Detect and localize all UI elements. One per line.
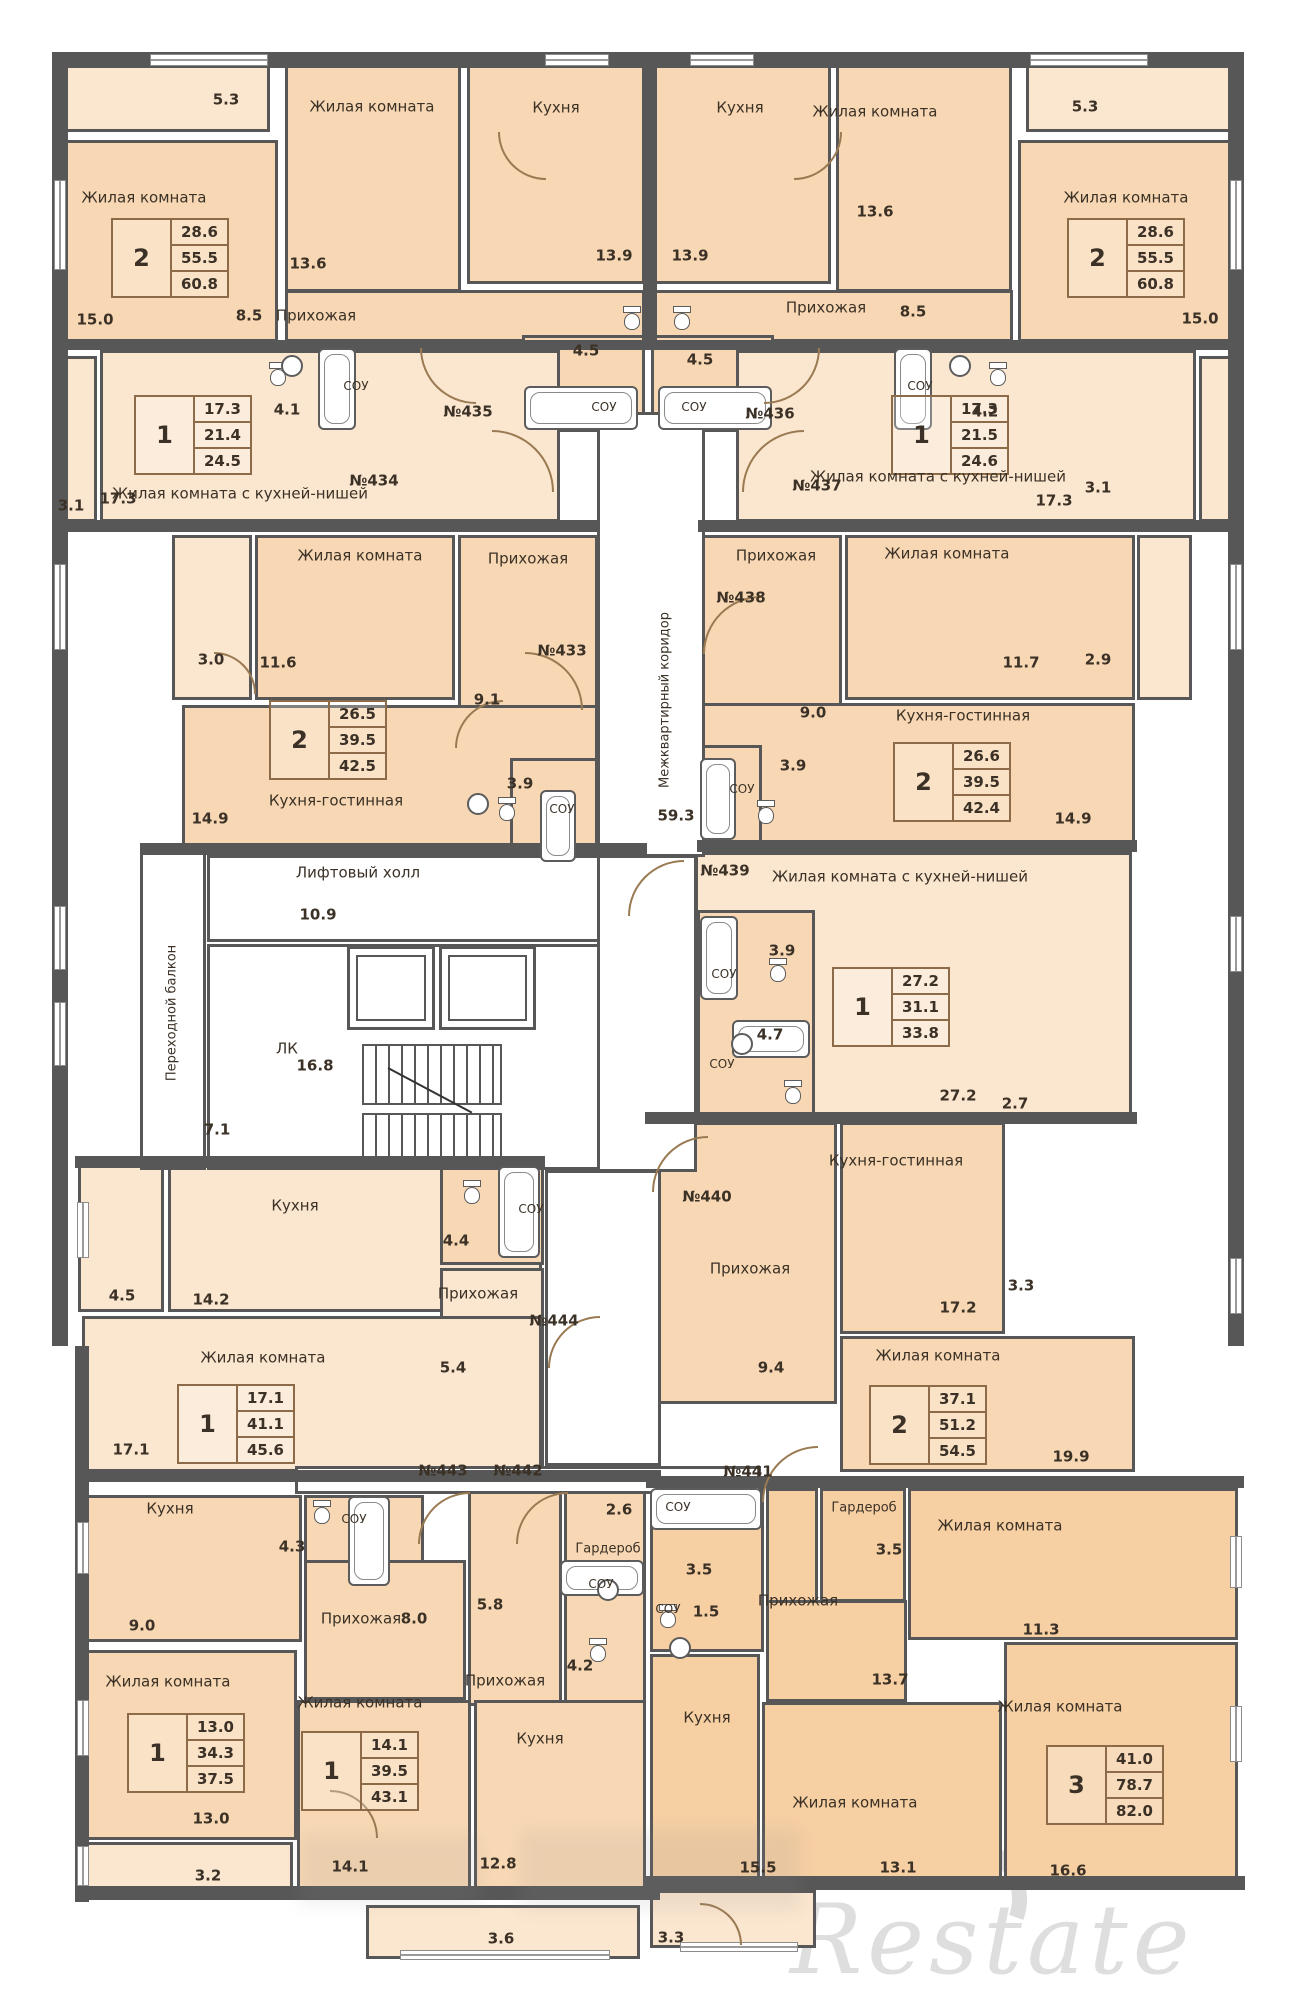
room-label: Жилая комната — [813, 105, 938, 120]
room-label: Кухня — [716, 101, 763, 116]
sink-icon — [949, 355, 971, 377]
bathtub-icon — [700, 916, 738, 1000]
dimension-label: 9.0 — [129, 1619, 156, 1634]
area-table-value: 55.5 — [1128, 246, 1183, 272]
wall-segment — [52, 340, 1244, 350]
dimension-label: 5.3 — [213, 93, 240, 108]
sink-icon — [281, 355, 303, 377]
toilet-icon — [462, 1180, 482, 1206]
room-label: Кухня — [516, 1732, 563, 1747]
room-label: Жилая комната — [793, 1796, 918, 1811]
apartment-number: №433 — [537, 644, 586, 659]
sink-icon — [467, 793, 489, 815]
dimension-label: 17.2 — [939, 1301, 976, 1316]
elevator-shaft — [347, 946, 435, 1030]
room-label: Жилая комната — [298, 1696, 423, 1711]
toilet-tank — [623, 306, 641, 313]
dimension-label: 14.1 — [331, 1860, 368, 1875]
area-table-value: 41.1 — [238, 1412, 293, 1438]
dimension-label: 16.8 — [296, 1059, 333, 1074]
apartment-number: №443 — [418, 1464, 467, 1479]
toilet-bowl — [674, 313, 690, 330]
room-label: СОУ — [709, 1058, 734, 1070]
room-label: СОУ — [343, 380, 368, 392]
toilet-bowl — [785, 1087, 801, 1104]
window — [150, 54, 268, 66]
dimension-label: 9.4 — [758, 1361, 785, 1376]
area-table-value: 51.2 — [930, 1413, 985, 1439]
area-table-value: 28.6 — [1128, 220, 1183, 246]
bathtub-basin — [706, 922, 732, 994]
dimension-label: 4.1 — [274, 403, 301, 418]
toilet-icon — [312, 1500, 332, 1526]
window — [77, 1202, 89, 1258]
dimension-label: 13.7 — [871, 1673, 908, 1688]
room-label: Жилая комната — [876, 1349, 1001, 1364]
area-table: 114.139.543.1 — [301, 1731, 419, 1811]
area-table-value: 54.5 — [930, 1439, 985, 1463]
dimension-label: 11.7 — [1002, 656, 1039, 671]
dimension-label: 3.9 — [507, 777, 534, 792]
dimension-label: 15.5 — [739, 1861, 776, 1876]
dimension-label: 9.0 — [800, 706, 827, 721]
toilet-icon — [783, 1080, 803, 1106]
room-label: Жилая комната — [1064, 191, 1189, 206]
apartment-number: №434 — [349, 474, 398, 489]
dimension-label: 3.9 — [780, 759, 807, 774]
area-table-value: 26.5 — [330, 702, 385, 728]
room-label: Жилая комната — [298, 549, 423, 564]
wall-segment — [75, 1470, 661, 1482]
bathtub-icon — [524, 386, 638, 430]
room-label: Кухня-гостинная — [829, 1154, 963, 1169]
room-label: Прихожая — [710, 1262, 790, 1277]
room-label: Прихожая — [276, 309, 356, 324]
area-table-value: 55.5 — [172, 246, 227, 272]
bathtub-icon — [700, 758, 736, 840]
room-label: Гардероб — [575, 1543, 640, 1556]
dimension-label: 3.0 — [198, 653, 225, 668]
area-table-value: 14.1 — [362, 1733, 417, 1759]
room-balcony-436 — [1026, 62, 1234, 132]
dimension-label: 15.0 — [1181, 312, 1218, 327]
room-label: СОУ — [549, 803, 574, 815]
area-table-value: 39.5 — [954, 770, 1009, 796]
area-table-value: 60.8 — [1128, 272, 1183, 296]
dimension-label: 7.1 — [204, 1123, 231, 1138]
dimension-label: 3.3 — [658, 1931, 685, 1946]
window — [1230, 1536, 1242, 1588]
area-table: 226.539.542.5 — [269, 700, 387, 780]
room-label: Кухня — [146, 1502, 193, 1517]
dimension-label: 8.5 — [236, 309, 263, 324]
room-label: Кухня — [271, 1199, 318, 1214]
bathtub-basin — [530, 392, 632, 424]
room-label: СОУ — [681, 401, 706, 413]
area-table-value: 31.1 — [893, 995, 948, 1021]
window — [690, 54, 754, 66]
toilet-tank — [757, 800, 775, 807]
dimension-label: 2.9 — [1085, 653, 1112, 668]
area-table: 117.141.145.6 — [177, 1384, 295, 1464]
area-table-value: 45.6 — [238, 1438, 293, 1462]
window — [545, 54, 609, 66]
dimension-label: 9.1 — [474, 693, 501, 708]
area-table-value: 39.5 — [362, 1759, 417, 1785]
toilet-tank — [784, 1080, 802, 1087]
toilet-bowl — [990, 369, 1006, 386]
room-label: Кухня-гостинная — [269, 794, 403, 809]
dimension-label: 17.1 — [112, 1443, 149, 1458]
door-arc — [418, 1492, 470, 1544]
dimension-label: 3.5 — [876, 1543, 903, 1558]
dimension-label: 3.9 — [769, 944, 796, 959]
dimension-label: 3.3 — [1008, 1279, 1035, 1294]
area-table-rooms: 2 — [1069, 220, 1128, 296]
window — [1230, 180, 1242, 270]
room-label: Прихожая — [488, 552, 568, 567]
window — [1230, 916, 1242, 972]
dimension-label: 12.8 — [479, 1857, 516, 1872]
area-table-value: 60.8 — [172, 272, 227, 296]
toilet-tank — [673, 306, 691, 313]
apartment-number: №444 — [529, 1314, 578, 1329]
area-table-rooms: 2 — [271, 702, 330, 778]
watermark: Restate — [790, 1892, 1195, 1988]
area-table-value: 43.1 — [362, 1785, 417, 1809]
window — [77, 1522, 89, 1574]
area-table-value: 41.0 — [1107, 1747, 1162, 1773]
room-label: Кухня-гостинная — [896, 709, 1030, 724]
wall-segment — [645, 1112, 1137, 1124]
toilet-bowl — [464, 1187, 480, 1204]
bathtub-basin — [706, 764, 730, 834]
area-table-value: 42.4 — [954, 796, 1009, 820]
window — [400, 1950, 610, 1960]
room-label: Жилая комната с кухней-нишей — [772, 870, 1028, 885]
toilet-bowl — [499, 804, 515, 821]
toilet-bowl — [758, 807, 774, 824]
area-table-value: 82.0 — [1107, 1799, 1162, 1823]
room-label: СОУ — [655, 1603, 680, 1615]
room-label: СОУ — [518, 1203, 543, 1215]
area-table-rooms: 1 — [303, 1733, 362, 1809]
window — [54, 564, 66, 650]
dimension-label: 13.9 — [671, 249, 708, 264]
area-table-value: 17.1 — [238, 1386, 293, 1412]
dimension-label: 59.3 — [657, 809, 694, 824]
room-label: ЛК — [276, 1042, 298, 1057]
room-living-444 — [82, 1316, 542, 1472]
toilet-tank — [498, 797, 516, 804]
dimension-label: 4.2 — [972, 405, 999, 420]
stairs-landing — [362, 1103, 502, 1115]
room-label: Переходной балкон — [166, 945, 179, 1081]
sink-icon — [731, 1033, 753, 1055]
apartment-number: №435 — [443, 405, 492, 420]
room-living113-441 — [908, 1488, 1238, 1640]
area-table-value: 27.2 — [893, 969, 948, 995]
toilet-tank — [989, 362, 1007, 369]
dimension-label: 13.1 — [879, 1861, 916, 1876]
room-label: Жилая комната — [310, 100, 435, 115]
room-label: Лифтовый холл — [296, 866, 420, 881]
wall-segment — [697, 840, 1137, 852]
dimension-label: 13.6 — [856, 205, 893, 220]
room-label: Жилая комната — [998, 1700, 1123, 1715]
dimension-label: 3.2 — [195, 1869, 222, 1884]
room-label: Прихожая — [465, 1674, 545, 1689]
apartment-number: №438 — [716, 591, 765, 606]
window — [77, 1700, 89, 1756]
room-label: Жилая комната — [938, 1519, 1063, 1534]
toilet-icon — [497, 797, 517, 823]
dimension-label: 5.4 — [440, 1361, 467, 1376]
room-living-436 — [836, 62, 1012, 292]
dimension-label: 10.9 — [299, 908, 336, 923]
dimension-label: 2.6 — [606, 1503, 633, 1518]
room-label: Прихожая — [321, 1612, 401, 1627]
apartment-number: №439 — [700, 864, 749, 879]
area-table-value: 13.0 — [188, 1715, 243, 1741]
toilet-bowl — [770, 965, 786, 982]
area-table-value: 21.5 — [952, 423, 1007, 449]
dimension-label: 15.0 — [76, 313, 113, 328]
elevator-shaft — [439, 946, 536, 1030]
bathtub-icon — [348, 1496, 390, 1586]
room-label: Жилая комната — [106, 1675, 231, 1690]
dimension-label: 4.3 — [279, 1540, 306, 1555]
area-table-rooms: 2 — [113, 220, 172, 296]
area-table-value: 28.6 — [172, 220, 227, 246]
room-label: Прихожая — [758, 1594, 838, 1609]
window — [1230, 564, 1242, 650]
area-table-rooms: 2 — [871, 1387, 930, 1463]
stairs — [362, 1044, 502, 1166]
area-table-value: 17.3 — [195, 397, 250, 423]
dimension-label: 13.9 — [595, 249, 632, 264]
apartment-number: №442 — [493, 1464, 542, 1479]
apartment-number: №437 — [792, 479, 841, 494]
area-table: 117.321.424.5 — [134, 395, 252, 475]
window — [54, 180, 66, 270]
area-table-rooms: 1 — [179, 1386, 238, 1462]
dimension-label: 27.2 — [939, 1089, 976, 1104]
area-table-value: 21.4 — [195, 423, 250, 449]
dimension-label: 5.3 — [1072, 100, 1099, 115]
dimension-label: 19.9 — [1052, 1450, 1089, 1465]
window — [77, 1846, 89, 1886]
toilet-tank — [463, 1180, 481, 1187]
area-table-rooms: 3 — [1048, 1747, 1107, 1823]
apartment-number: №440 — [682, 1190, 731, 1205]
area-table: 228.655.560.8 — [1067, 218, 1185, 298]
area-table: 113.034.337.5 — [127, 1713, 245, 1793]
room-label: СОУ — [591, 401, 616, 413]
room-label: СОУ — [588, 1578, 613, 1590]
wall-segment — [643, 52, 657, 342]
dimension-label: 3.1 — [58, 499, 85, 514]
room-label: СОУ — [729, 783, 754, 795]
room-label: Гардероб — [831, 1502, 896, 1515]
toilet-icon — [768, 958, 788, 984]
room-label: Жилая комната — [82, 191, 207, 206]
area-table-value: 24.5 — [195, 449, 250, 473]
dimension-label: 1.5 — [693, 1605, 720, 1620]
window — [1230, 1258, 1242, 1314]
dimension-label: 3.1 — [1085, 481, 1112, 496]
dimension-label: 16.6 — [1049, 1864, 1086, 1879]
bathtub-icon — [540, 790, 576, 862]
dimension-label: 14.2 — [192, 1293, 229, 1308]
window — [1030, 54, 1148, 66]
toilet-icon — [756, 800, 776, 826]
room-balcony-438 — [1137, 535, 1192, 700]
wall-segment — [55, 520, 600, 532]
area-table: 341.078.782.0 — [1046, 1745, 1164, 1825]
room-label: Кухня — [683, 1711, 730, 1726]
dimension-label: 13.0 — [192, 1812, 229, 1827]
area-table: 228.655.560.8 — [111, 218, 229, 298]
area-table-rooms: 1 — [129, 1715, 188, 1791]
dimension-label: 14.9 — [1054, 812, 1091, 827]
room-label: Кухня — [532, 101, 579, 116]
room-label: Прихожая — [736, 549, 816, 564]
room-label: Межквартирный коридор — [659, 612, 672, 788]
dimension-label: 4.5 — [573, 344, 600, 359]
area-table-value: 34.3 — [188, 1741, 243, 1767]
dimension-label: 4.5 — [109, 1289, 136, 1304]
apartment-number: №436 — [745, 407, 794, 422]
window — [54, 1002, 66, 1066]
toilet-icon — [988, 362, 1008, 388]
room-label: Прихожая — [438, 1287, 518, 1302]
floor-plan: Restate 228.655.560.8228.655.560.8117.32… — [0, 0, 1296, 2000]
toilet-tank — [589, 1638, 607, 1645]
room-label: СОУ — [907, 380, 932, 392]
elevator-cab — [448, 955, 527, 1021]
area-table: 237.151.254.5 — [869, 1385, 987, 1465]
area-table-value: 33.8 — [893, 1021, 948, 1045]
area-table-value: 42.5 — [330, 754, 385, 778]
room-label: Жилая комната с кухней-нишей — [810, 470, 1066, 485]
window — [1230, 1706, 1242, 1762]
dimension-label: 5.8 — [477, 1598, 504, 1613]
area-table-value: 39.5 — [330, 728, 385, 754]
room-label: СОУ — [341, 1513, 366, 1525]
area-table-rooms: 1 — [834, 969, 893, 1045]
area-table-value: 78.7 — [1107, 1773, 1162, 1799]
elevator-cab — [356, 955, 426, 1021]
dimension-label: 11.6 — [259, 656, 296, 671]
room-label: Прихожая — [786, 301, 866, 316]
area-table-rooms: 1 — [136, 397, 195, 473]
wall-segment — [75, 1346, 89, 1902]
toilet-bowl — [624, 313, 640, 330]
dimension-label: 11.3 — [1022, 1623, 1059, 1638]
dimension-label: 4.2 — [567, 1659, 594, 1674]
wall-segment — [698, 520, 1244, 532]
toilet-icon — [622, 306, 642, 332]
dimension-label: 8.5 — [900, 305, 927, 320]
dimension-label: 17.3 — [1035, 494, 1072, 509]
sink-icon — [669, 1637, 691, 1659]
room-label: Жилая комната с кухней-нишей — [112, 487, 368, 502]
dimension-label: 3.6 — [488, 1932, 515, 1947]
watermark-blob — [300, 1835, 480, 1905]
area-table-rooms: 2 — [895, 744, 954, 820]
dimension-label: 4.4 — [443, 1234, 470, 1249]
toilet-icon — [672, 306, 692, 332]
window — [54, 906, 66, 970]
room-label: СОУ — [665, 1501, 690, 1513]
area-corridor-top — [597, 412, 705, 857]
dimension-label: 4.7 — [757, 1028, 784, 1043]
door-arc — [794, 132, 842, 180]
area-table-value: 37.1 — [930, 1387, 985, 1413]
area-table-value: 37.5 — [188, 1767, 243, 1791]
area-elevator-hall — [207, 855, 647, 942]
dimension-label: 2.7 — [1002, 1097, 1029, 1112]
room-kitchen-443 — [85, 1495, 302, 1642]
room-label: Жилая комната — [201, 1351, 326, 1366]
room-label: СОУ — [711, 968, 736, 980]
apartment-number: №441 — [723, 1465, 772, 1480]
area-table-rooms: 1 — [893, 397, 952, 473]
dimension-label: 4.5 — [687, 353, 714, 368]
dimension-label: 3.5 — [686, 1563, 713, 1578]
area-table: 226.639.542.4 — [893, 742, 1011, 822]
area-table: 127.231.133.8 — [832, 967, 950, 1047]
toilet-bowl — [314, 1507, 330, 1524]
dimension-label: 13.6 — [289, 257, 326, 272]
dimension-label: 8.0 — [401, 1612, 428, 1627]
toilet-tank — [313, 1500, 331, 1507]
dimension-label: 14.9 — [191, 812, 228, 827]
room-label: Жилая комната — [885, 547, 1010, 562]
area-table-value: 26.6 — [954, 744, 1009, 770]
